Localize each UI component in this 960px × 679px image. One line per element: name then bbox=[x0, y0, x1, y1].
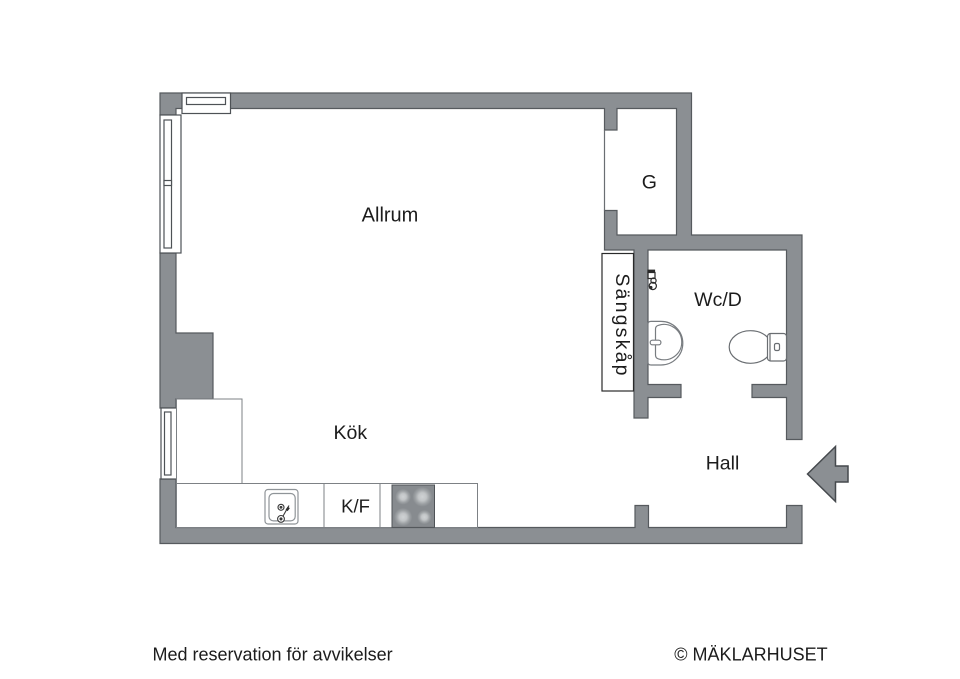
svg-text:Med reservation för avvikelser: Med reservation för avvikelser bbox=[153, 645, 393, 665]
svg-text:© MÄKLARHUSET: © MÄKLARHUSET bbox=[674, 645, 827, 665]
svg-text:Wc/D: Wc/D bbox=[694, 289, 742, 311]
svg-text:Allrum: Allrum bbox=[362, 205, 419, 227]
svg-text:K/F: K/F bbox=[341, 496, 370, 517]
svg-text:Sängskåp: Sängskåp bbox=[611, 273, 633, 377]
svg-text:Hall: Hall bbox=[706, 453, 740, 475]
svg-text:Kök: Kök bbox=[333, 422, 367, 444]
svg-text:G: G bbox=[642, 172, 657, 194]
